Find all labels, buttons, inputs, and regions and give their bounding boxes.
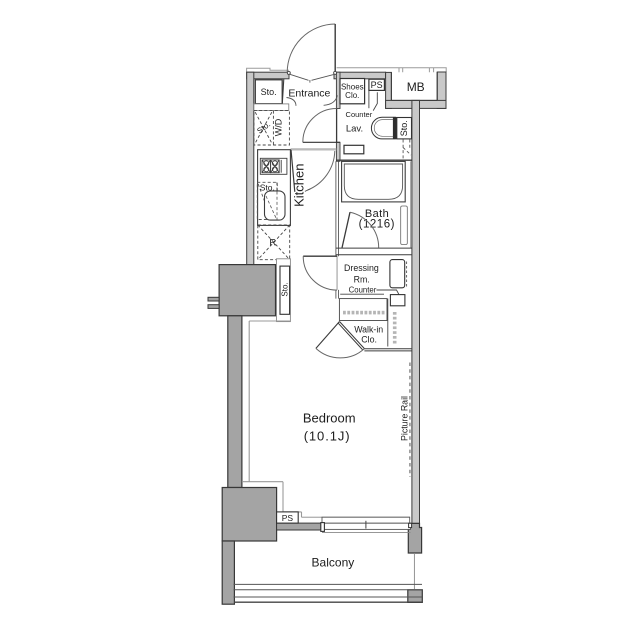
svg-text:Balcony: Balcony bbox=[312, 555, 355, 569]
svg-text:Picture Rail: Picture Rail bbox=[399, 396, 409, 441]
svg-text:Clo.: Clo. bbox=[345, 91, 359, 100]
svg-text:(10.1J): (10.1J) bbox=[304, 428, 351, 443]
svg-text:Sto.: Sto. bbox=[281, 282, 290, 296]
svg-text:Walk-in: Walk-in bbox=[354, 324, 383, 334]
svg-text:Bedroom: Bedroom bbox=[303, 410, 356, 425]
svg-text:Kitchen: Kitchen bbox=[291, 164, 306, 207]
svg-text:Counter: Counter bbox=[346, 110, 373, 119]
svg-text:PS: PS bbox=[282, 513, 294, 523]
svg-text:MB: MB bbox=[407, 80, 425, 94]
svg-text:Lav.: Lav. bbox=[346, 124, 363, 135]
svg-text:W/D: W/D bbox=[274, 118, 284, 136]
svg-text:Clo.: Clo. bbox=[361, 335, 377, 345]
svg-text:Entrance: Entrance bbox=[288, 88, 330, 100]
svg-text:Dressing: Dressing bbox=[344, 263, 379, 273]
svg-text:Rm.: Rm. bbox=[354, 275, 370, 285]
svg-text:Sto.: Sto. bbox=[399, 120, 409, 136]
svg-text:PS: PS bbox=[371, 80, 383, 90]
svg-text:Sto.: Sto. bbox=[261, 87, 277, 97]
svg-text:(1216): (1216) bbox=[359, 219, 395, 231]
svg-text:R: R bbox=[269, 238, 276, 249]
svg-text:Counter: Counter bbox=[349, 286, 377, 295]
